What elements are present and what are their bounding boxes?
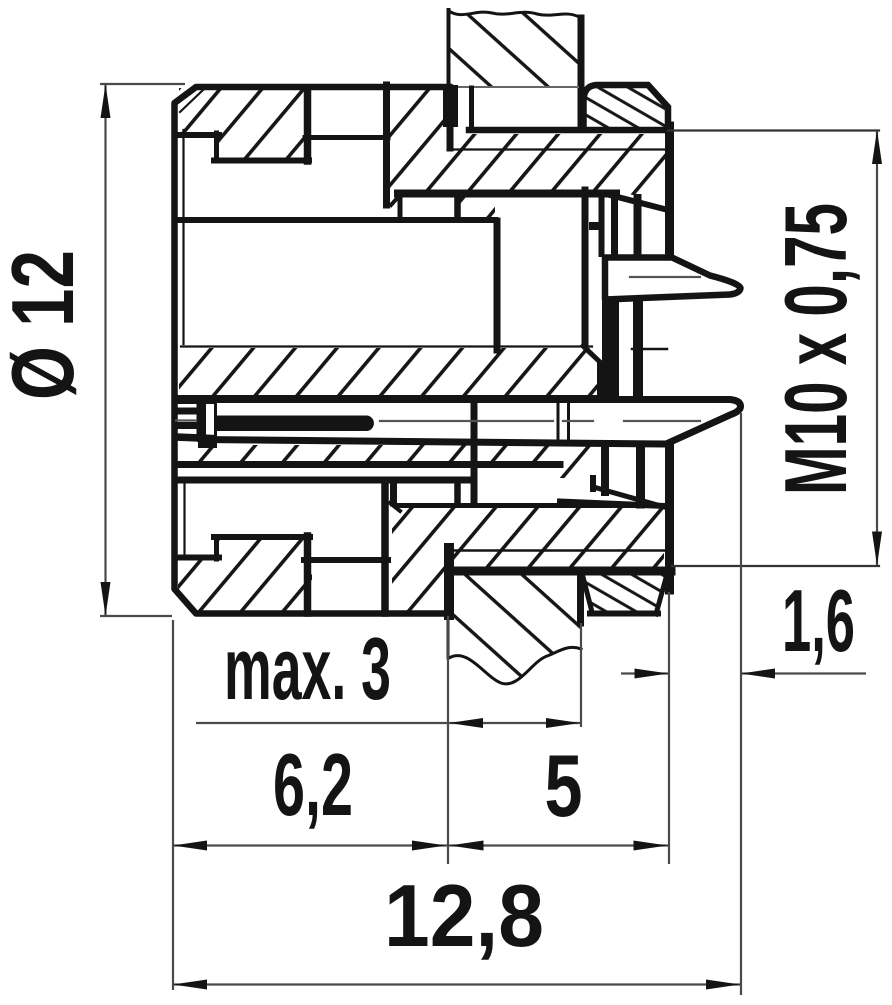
svg-text:12,8: 12,8 bbox=[384, 866, 544, 965]
svg-text:M10 x 0,75: M10 x 0,75 bbox=[766, 203, 865, 495]
svg-text:1,6: 1,6 bbox=[782, 571, 855, 670]
svg-text:5: 5 bbox=[545, 736, 583, 835]
svg-text:6,2: 6,2 bbox=[273, 735, 353, 834]
svg-text:Ø 12: Ø 12 bbox=[0, 250, 92, 400]
svg-text:max. 3: max. 3 bbox=[224, 619, 391, 718]
